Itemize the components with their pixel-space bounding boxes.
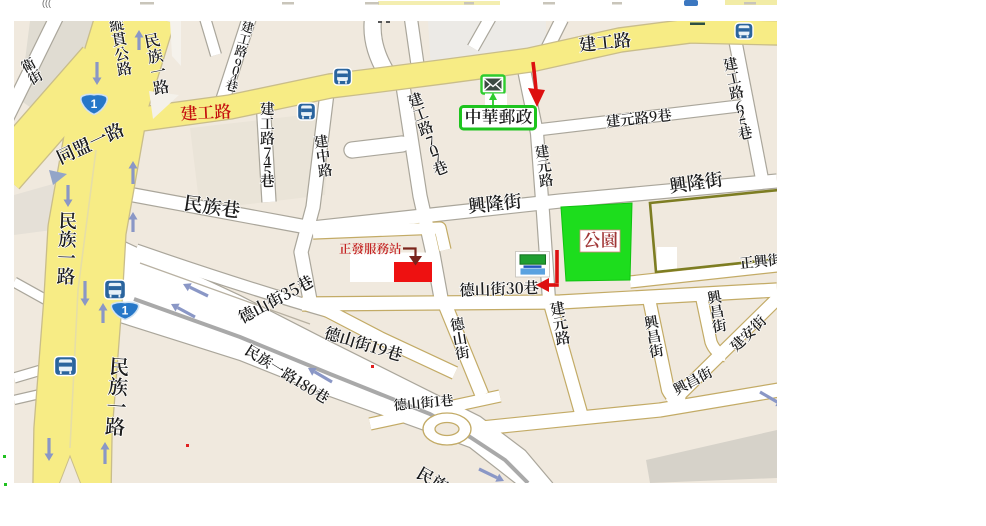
svg-text:1: 1	[122, 304, 129, 318]
svg-text:1: 1	[91, 97, 98, 111]
svg-text:(((: (((	[42, 0, 51, 8]
